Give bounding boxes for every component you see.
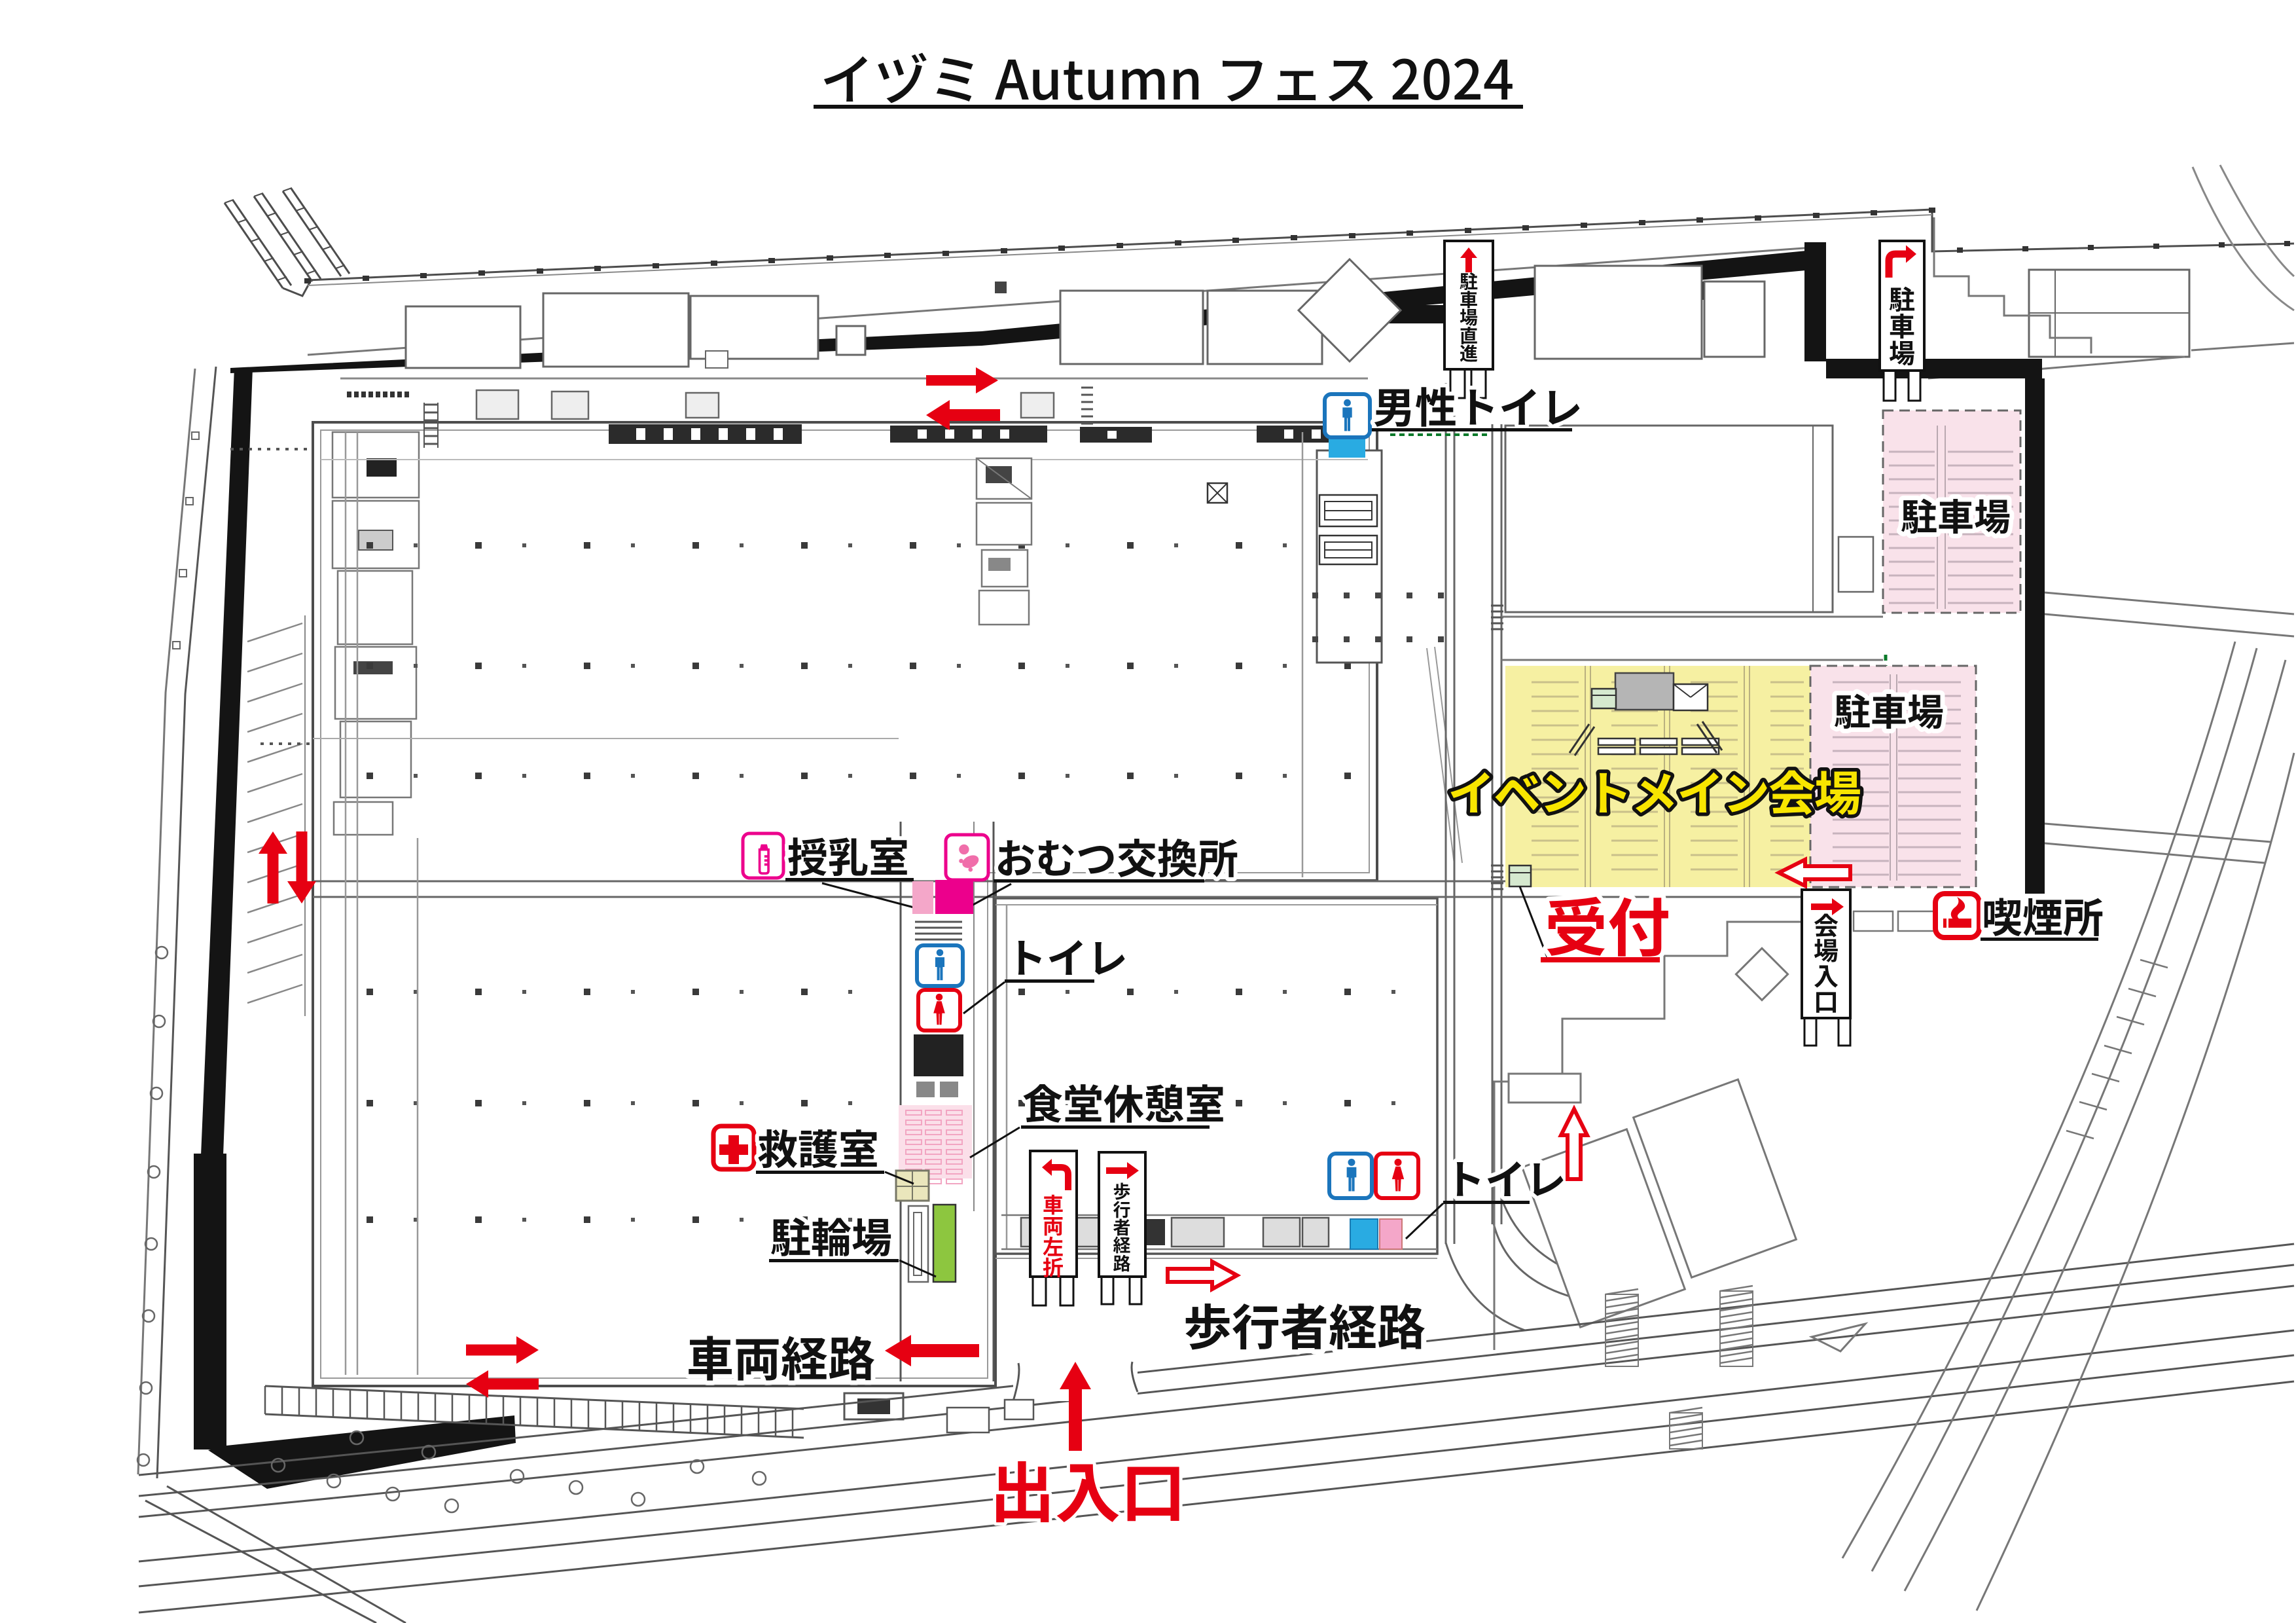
svg-text:駐車場: 駐車場 — [1901, 488, 2011, 541]
svg-text:路: 路 — [1113, 1250, 1131, 1275]
svg-text:歩行者経路: 歩行者経路 — [1183, 1289, 1426, 1359]
svg-text:受付: 受付 — [1545, 878, 1670, 969]
svg-text:授乳室: 授乳室 — [787, 825, 909, 884]
svg-text:イヅミ Autumn フェス 2024: イヅミ Autumn フェス 2024 — [820, 37, 1515, 115]
svg-text:喫煙所: 喫煙所 — [1982, 885, 2104, 944]
svg-text:男性トイレ: 男性トイレ — [1373, 375, 1583, 435]
svg-text:進: 進 — [1460, 340, 1478, 366]
svg-text:車両経路: 車両経路 — [687, 1321, 875, 1390]
svg-text:出入口: 出入口 — [990, 1440, 1186, 1535]
svg-text:食堂休憩室: 食堂休憩室 — [1022, 1072, 1225, 1131]
svg-text:トイレ: トイレ — [1444, 1147, 1566, 1206]
svg-text:折: 折 — [1043, 1252, 1064, 1282]
svg-text:場: 場 — [1889, 333, 1915, 371]
svg-text:駐車場: 駐車場 — [1834, 684, 1944, 737]
svg-text:おむつ交換所: おむつ交換所 — [995, 826, 1238, 885]
svg-text:口: 口 — [1814, 982, 1839, 1018]
svg-text:駐輪場: 駐輪場 — [770, 1205, 892, 1264]
svg-text:イベントメイン会場: イベントメイン会場 — [1448, 756, 1860, 824]
svg-text:トイレ: トイレ — [1006, 926, 1128, 985]
svg-text:救護室: 救護室 — [757, 1117, 879, 1176]
